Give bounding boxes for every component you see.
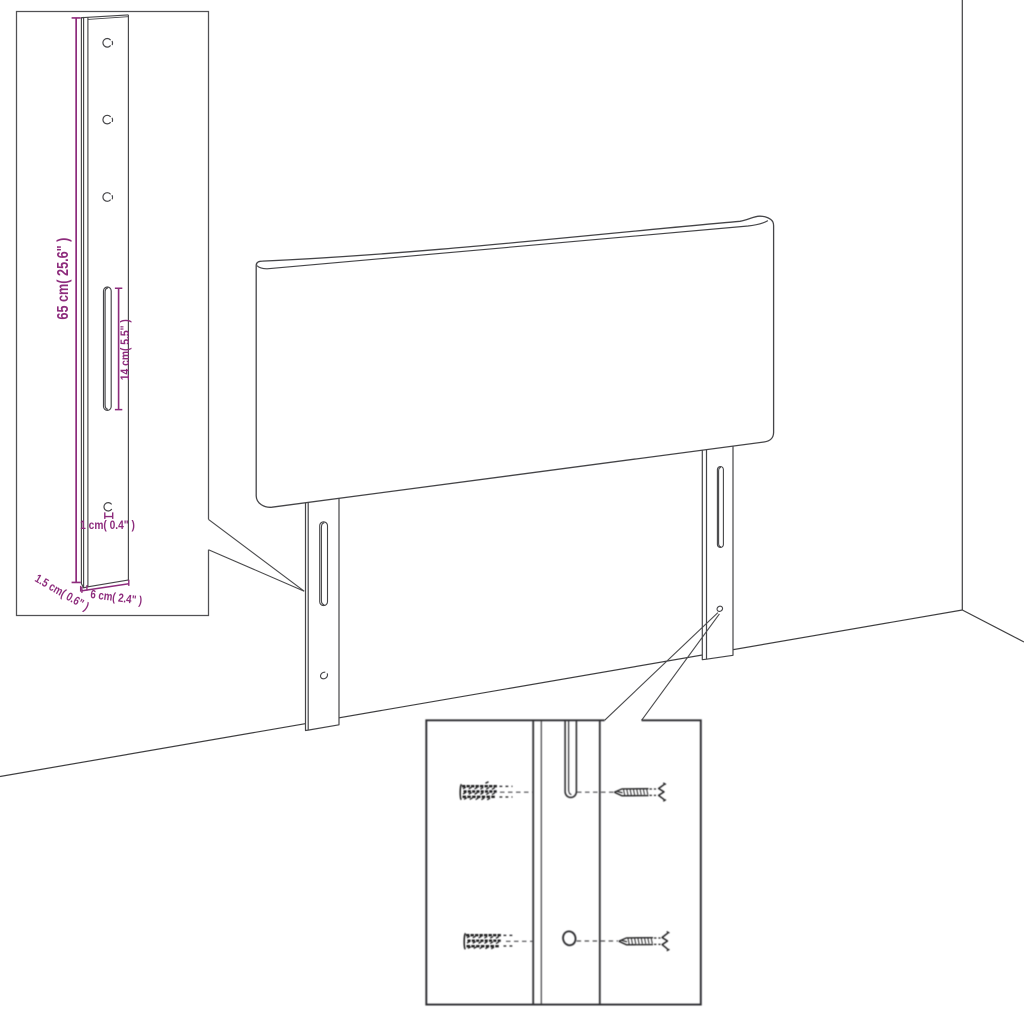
svg-text:1 cm( 0.4" ): 1 cm( 0.4" ) bbox=[80, 518, 135, 532]
svg-text:65 cm( 25.6" ): 65 cm( 25.6" ) bbox=[55, 238, 72, 320]
svg-text:14 cm( 5.5" ): 14 cm( 5.5" ) bbox=[118, 319, 132, 380]
